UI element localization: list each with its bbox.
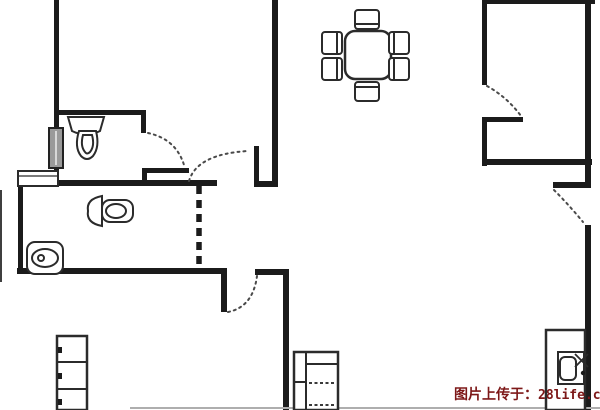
dining-chair-left-1 [322, 32, 342, 54]
watermark: 图片上传于：28life.com [454, 387, 600, 404]
center-divider-wall [272, 0, 278, 187]
balcony-door-arc [554, 190, 583, 222]
living-room-vertical-wall [283, 269, 289, 410]
kitchen-bottom-wall [482, 159, 592, 165]
living-door-arc [228, 276, 257, 312]
dining-chair-bottom [355, 82, 379, 101]
kitchen-nook-wall-h [484, 117, 523, 122]
dining-door-arc [487, 86, 521, 116]
cabinet-handle-3 [58, 399, 62, 405]
toilet-bowl-inner [82, 135, 93, 154]
dining-table [345, 31, 391, 79]
sink-drain [38, 255, 44, 261]
toilet2-bowl-inner [106, 204, 126, 218]
dining-chair-left-2 [322, 58, 342, 80]
bathroom-bottom-wall [142, 168, 189, 173]
outer-left-line [0, 190, 2, 282]
watermark-site: 28life.com [538, 388, 600, 403]
tv-screen [560, 357, 576, 380]
door-jamb-stub [254, 146, 259, 186]
bathroom-door-arc [148, 133, 184, 165]
bathroom2-left-wall [18, 186, 23, 273]
bottom-faint-line [130, 407, 600, 409]
cabinet-handle-1 [58, 347, 62, 353]
floor-plan-image: 图片上传于：28life.com [0, 0, 600, 410]
cabinet-handle-2 [58, 373, 62, 379]
watermark-prefix: 图片上传于： [454, 387, 538, 403]
bathroom2-window [18, 171, 58, 186]
top-right-wall [484, 0, 595, 4]
toilet2-tank [88, 196, 102, 226]
dining-chair-right-2 [389, 58, 409, 80]
dining-chair-top [355, 10, 379, 29]
right-wall-tick [553, 182, 591, 188]
bathroom-top-wall [54, 110, 146, 115]
dining-divider-wall [482, 0, 487, 85]
tv-knob [581, 371, 585, 375]
hall-door-arc [189, 151, 248, 181]
floor-plan-canvas [0, 0, 600, 410]
dining-chair-right-1 [389, 32, 409, 54]
bathroom-top-wall-stub [141, 110, 146, 133]
right-exterior-wall-upper [585, 0, 591, 188]
hallway-wall-stub [221, 274, 227, 312]
kitchen-nook-wall-v [482, 117, 487, 166]
